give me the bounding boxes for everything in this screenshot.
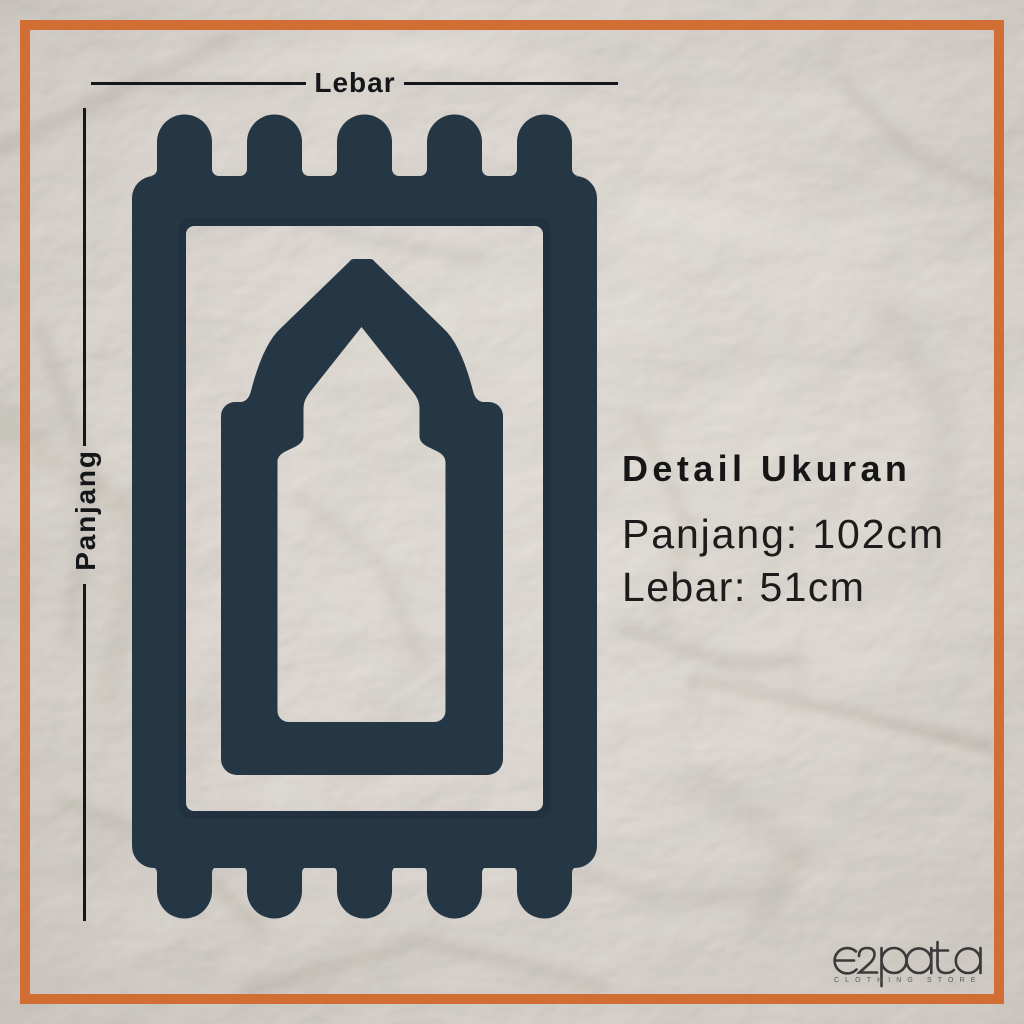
svg-text:CLOTHING STORE: CLOTHING STORE: [834, 977, 982, 984]
